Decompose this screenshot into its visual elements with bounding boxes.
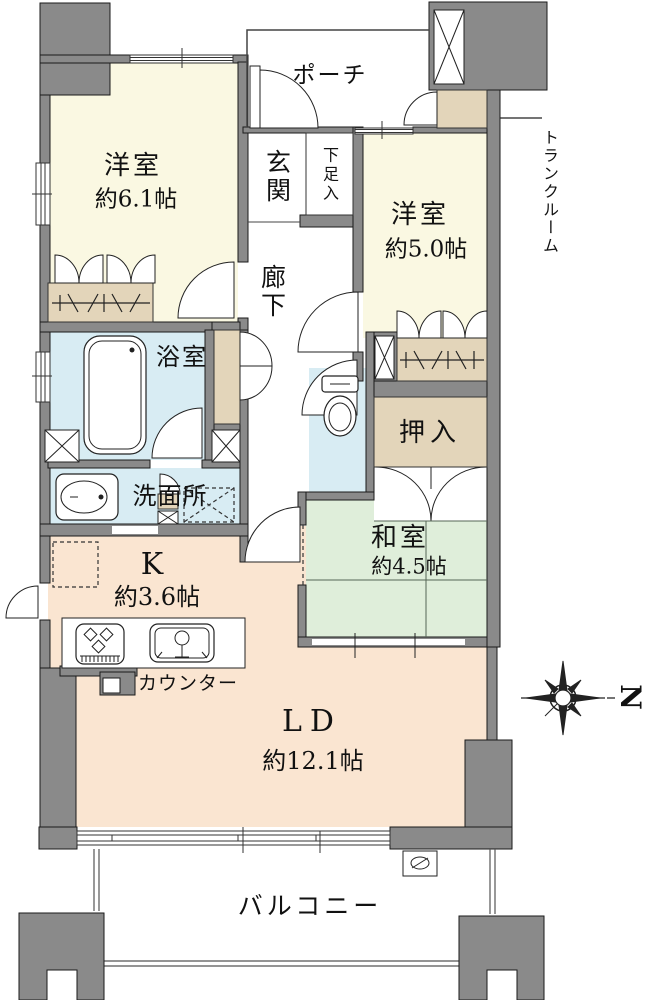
pipe-shaft-icon	[212, 430, 240, 462]
pillar	[459, 916, 544, 1000]
elevator-shaft-icon	[434, 10, 464, 84]
hall-storage	[214, 330, 240, 424]
bathroom-label: 浴室	[156, 345, 208, 369]
japanese-room-size: 約4.5帖	[371, 557, 446, 578]
compass-icon	[521, 661, 615, 735]
living-dining-size: 約12.1帖	[262, 749, 363, 773]
counter-step-niche	[103, 678, 120, 693]
porch-label: ポーチ	[293, 65, 368, 88]
shoe-cabinet-label: 下足入	[321, 147, 337, 204]
wall	[40, 95, 50, 163]
stove-icon	[76, 624, 124, 664]
wall	[353, 127, 363, 292]
wall	[40, 668, 76, 827]
pipe-shaft-icon	[375, 336, 394, 379]
front-door-leaf	[250, 66, 260, 128]
sliding-door-opening	[312, 639, 465, 645]
wall	[40, 55, 132, 63]
pipe-shaft-icon	[158, 511, 178, 524]
western-room-2-label: 洋室	[391, 202, 449, 228]
western-room-1-label: 洋室	[104, 153, 162, 179]
pipe-shaft-icon	[45, 430, 79, 462]
kitchen-label: K	[141, 550, 163, 580]
wall	[390, 827, 512, 849]
counter-label: カウンター	[138, 675, 238, 694]
wall	[300, 215, 353, 227]
entrance-label: 玄関	[265, 149, 290, 205]
pillar	[40, 3, 110, 95]
kitchen-service-door-arc	[6, 586, 38, 618]
western-room-1-size: 約6.1帖	[95, 189, 178, 212]
living-dining-label: LD	[282, 707, 342, 737]
wall	[40, 620, 50, 668]
balcony-sliding-window	[77, 827, 390, 853]
japanese-room-label: 和室	[371, 525, 429, 551]
compass-north-label: N	[616, 684, 644, 710]
oshiire-label: 押入	[399, 420, 461, 446]
floor-plan: ポーチ 洋室 約6.1帖 洋室 約5.0帖 玄関 下足入 トランクルーム 廊下 …	[0, 0, 648, 1000]
washroom-door-opening	[112, 526, 158, 534]
hallway-label: 廊下	[260, 264, 285, 320]
pillar	[19, 913, 104, 1000]
vanity-sink-icon	[56, 474, 118, 520]
wall	[39, 827, 77, 849]
bathtub-icon	[84, 336, 146, 454]
trunk-room-box	[437, 90, 487, 128]
washroom-label: 洗面所	[133, 484, 208, 508]
wall	[374, 381, 487, 397]
window	[32, 163, 52, 225]
western-room-2-size: 約5.0帖	[385, 239, 468, 262]
wall	[366, 332, 374, 492]
balcony-label: バルコニー	[238, 894, 383, 919]
wall	[298, 585, 306, 637]
door-arc	[298, 292, 358, 352]
trunk-room-label: トランクルーム	[541, 129, 557, 255]
western-room-2-floor	[363, 133, 487, 338]
wall	[40, 402, 50, 536]
wall	[214, 424, 240, 430]
trunk-door-arc	[404, 92, 437, 125]
toilet-icon	[322, 376, 358, 436]
wall	[40, 322, 212, 332]
wall	[487, 647, 497, 740]
kitchen-sink-icon	[150, 624, 214, 662]
balcony-structure	[19, 849, 544, 1000]
wall	[465, 740, 512, 830]
wall	[487, 90, 500, 647]
balcony-faucet-icon	[403, 851, 437, 876]
wall	[40, 536, 50, 583]
wall	[300, 492, 374, 500]
kitchen-size: 約3.6帖	[114, 585, 200, 609]
window	[32, 352, 52, 402]
